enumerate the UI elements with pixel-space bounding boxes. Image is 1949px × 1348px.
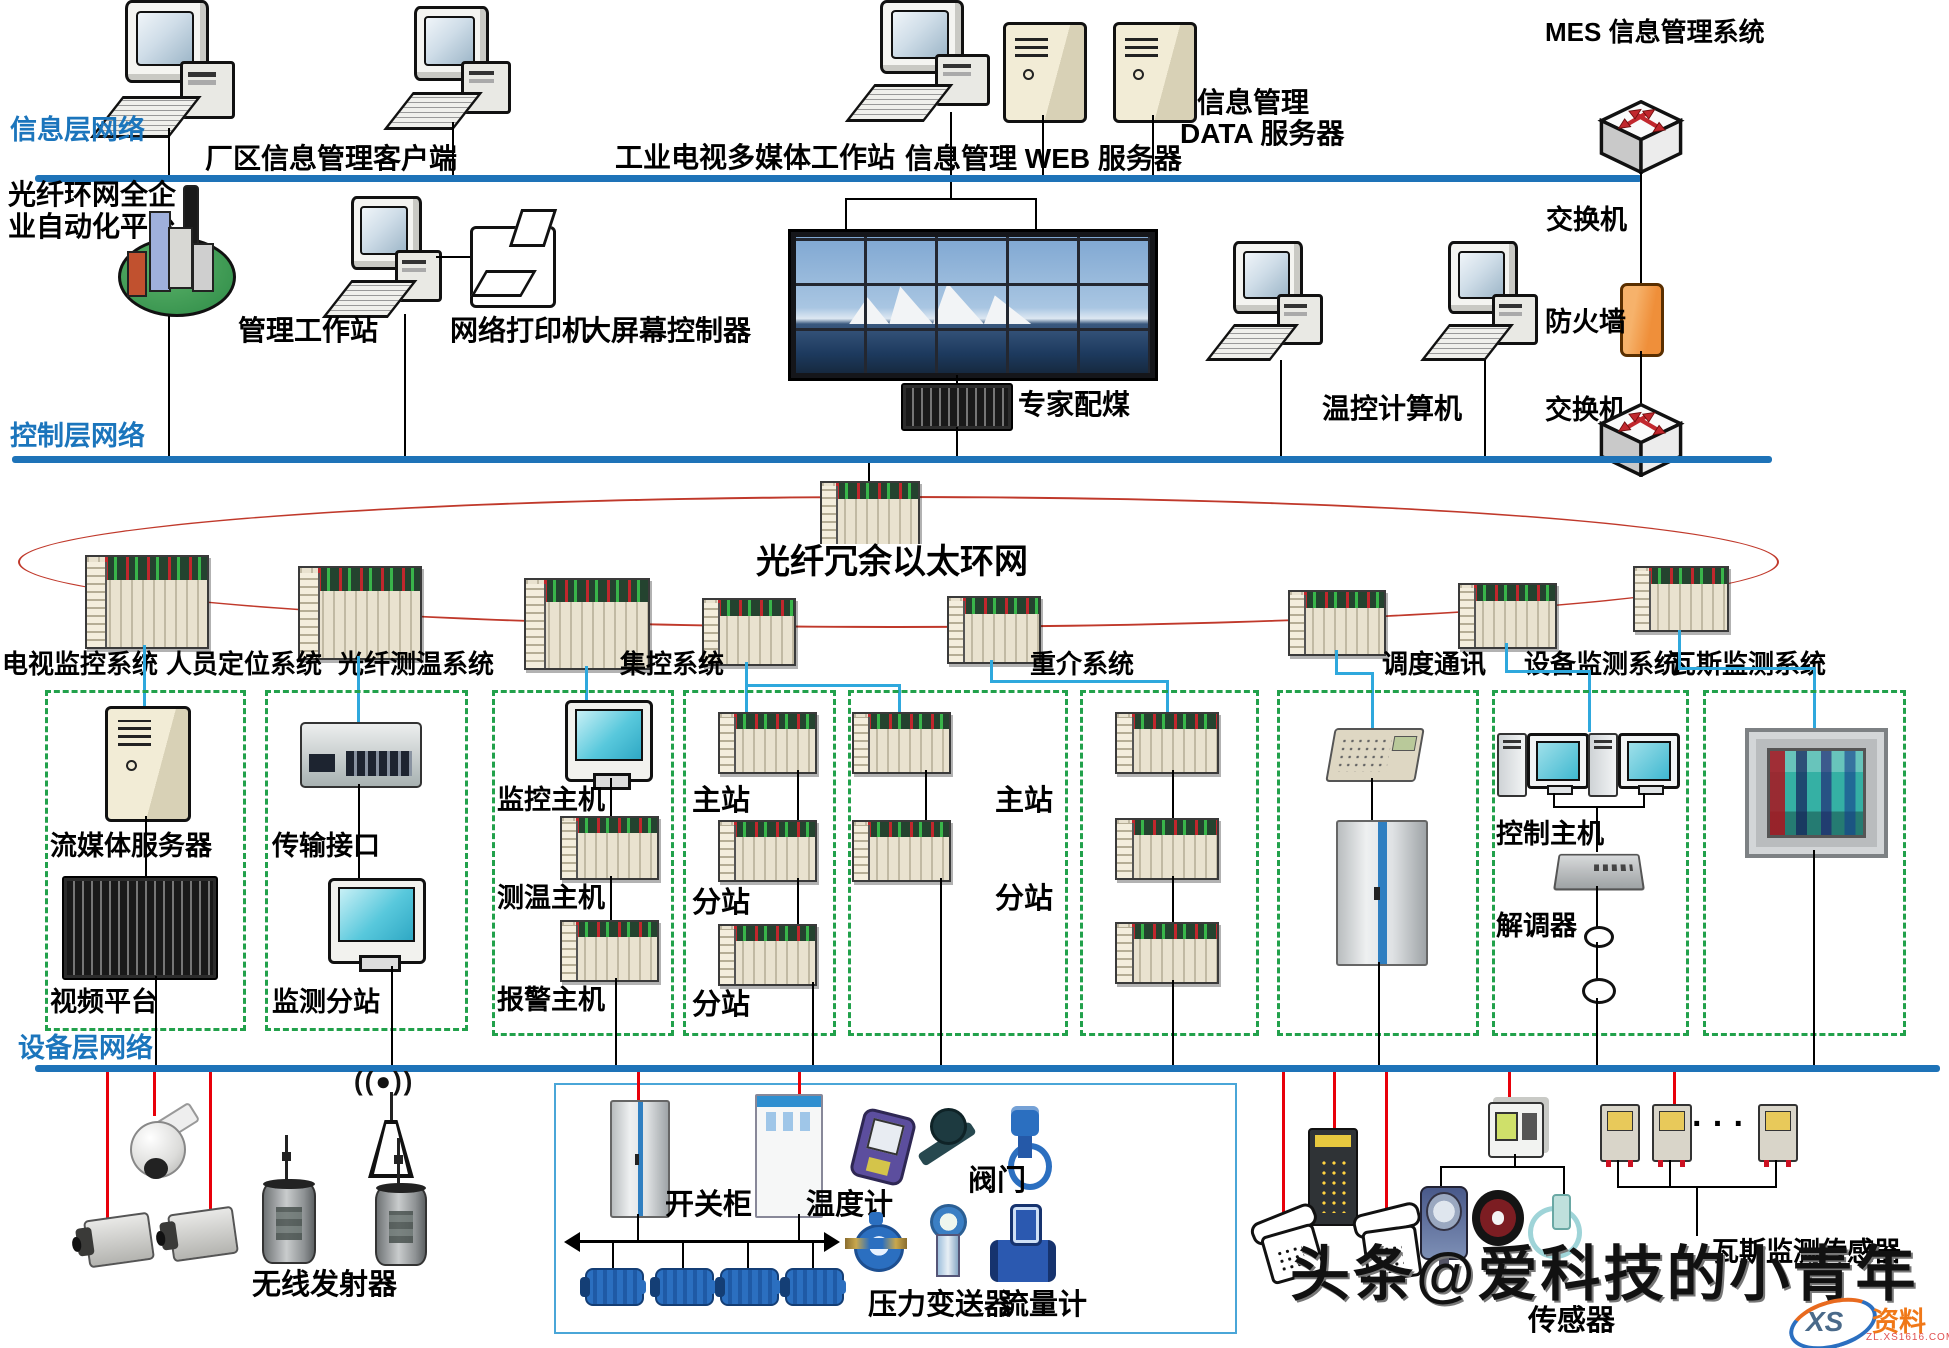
box-camera-icon (83, 1212, 155, 1269)
connector-line (1775, 1160, 1777, 1188)
firewall-label: 防火墙 (1545, 308, 1626, 338)
connector-line (1596, 886, 1598, 928)
tv-workstation-label: 工业电视多媒体工作站 (615, 143, 895, 174)
ring-system-label: 光纤测温系统 (338, 650, 494, 679)
connector-line (1280, 360, 1282, 457)
link-line (1335, 650, 1338, 674)
connector-line (682, 1242, 684, 1268)
firewall-icon (1620, 283, 1664, 357)
connector-line (940, 878, 942, 1066)
connector-line (436, 256, 472, 258)
connector-line (845, 198, 847, 233)
connector-line (797, 878, 799, 924)
connector-line (868, 463, 870, 481)
dispatch-console-icon (1325, 728, 1425, 782)
plc-icon (1115, 712, 1219, 774)
watermark-text: 头条@爱科技的小青年 (1290, 1226, 1919, 1313)
slave-station-label: 分站 (692, 888, 750, 920)
pressure-transmitter-label: 压力变送器 (868, 1290, 1013, 1322)
temp-computer-icon (1420, 241, 1538, 361)
video-platform-label: 视频平台 (50, 988, 158, 1018)
plc-icon (1115, 818, 1219, 880)
control-host-tower-icon (1497, 733, 1527, 797)
link-line (1673, 1072, 1676, 1106)
motor-icon (655, 1268, 714, 1306)
connector-line (812, 982, 814, 1066)
transmission-interface-label: 传输接口 (272, 832, 380, 862)
connector-line (1172, 876, 1174, 922)
video-wall-icon (788, 229, 1158, 381)
switch-cabinet-label: 开关柜 (665, 1190, 752, 1222)
connector-line (404, 314, 406, 457)
control-host-monitor-icon (1527, 733, 1589, 789)
connector-line (1596, 998, 1598, 1066)
plc-icon (852, 712, 951, 774)
connector-line (1553, 806, 1645, 808)
mgmt-workstation-icon (322, 196, 442, 318)
connector-line (1172, 770, 1174, 818)
connector-line (1378, 962, 1380, 1066)
water-meter-icon (845, 1208, 907, 1274)
box-camera-icon (167, 1206, 239, 1263)
screen-controller-label: 大屏幕控制器 (583, 316, 751, 347)
connector-line (798, 1214, 800, 1242)
expert-coal-label: 专家配煤 (1018, 390, 1130, 421)
temp-computer-label: 温控计算机 (1322, 394, 1462, 425)
master-station-label: 主站 (995, 786, 1053, 818)
ring-system-label: 重介系统 (1030, 650, 1134, 679)
mgmt-workstation-label: 管理工作站 (238, 316, 378, 347)
control-layer-bus (12, 456, 1772, 463)
master-station-label: 主站 (692, 786, 750, 818)
motor-icon (585, 1268, 644, 1306)
dispatch-cabinet-icon (1336, 820, 1428, 966)
logo-xs-text: XS (1806, 1306, 1843, 1337)
wireless-transmitter-icon (375, 1186, 427, 1266)
antenna-rod-node (394, 1155, 403, 1164)
network-diagram: 信息层网络 厂区信息管理客户端 工业电视多媒体工作站 信息管理 WEB 服务器 … (0, 0, 1949, 1348)
control-host-label: 控制主机 (1496, 820, 1604, 850)
screen-controller-rack-icon (901, 383, 1013, 431)
ring-system-label: 电视监控系统 (2, 650, 158, 679)
monitor-host-label: 监控主机 (497, 786, 605, 816)
switch-icon (1597, 100, 1685, 174)
plc-icon (718, 712, 817, 774)
plc-icon (852, 820, 951, 882)
flow-meter-label: 流量计 (1000, 1290, 1087, 1322)
junction-box-icon (1488, 1102, 1544, 1158)
motor-bus-line (578, 1240, 826, 1243)
gas-monitor-screen-icon (1745, 728, 1888, 858)
info-layer-label: 信息层网络 (10, 116, 145, 146)
connector-line (1172, 980, 1174, 1066)
alarm-host-label: 报警主机 (497, 986, 605, 1016)
connector-line (1035, 198, 1037, 233)
wireless-transmitter-label: 无线发射器 (252, 1270, 397, 1302)
link-line (1385, 1072, 1388, 1208)
connector-line (1440, 1166, 1565, 1168)
connector-line (956, 375, 958, 383)
connector-line (145, 816, 147, 876)
connector-line (747, 1242, 749, 1268)
connector-line (956, 427, 958, 457)
connector-line (155, 976, 157, 1066)
ring-title: 光纤冗余以太环网 (748, 544, 1036, 581)
monitor-substation-icon (328, 878, 426, 964)
switch-cabinet-icon (610, 1100, 670, 1218)
link-line (1282, 1072, 1285, 1212)
link-line (798, 1072, 801, 1094)
switch1-label: 交换机 (1546, 206, 1627, 236)
motor-icon (720, 1268, 779, 1306)
ring-system-label: 调度通讯 (1382, 650, 1486, 679)
arrow-left-icon (564, 1232, 580, 1252)
ring-system-label: 设备监测系统 (1524, 650, 1680, 679)
plc-icon (85, 555, 209, 649)
client-label: 厂区信息管理客户端 (205, 144, 457, 175)
connector-line (1669, 1160, 1671, 1188)
motor-icon (785, 1268, 844, 1306)
tv-workstation-icon (383, 6, 511, 130)
device-layer-label: 设备层网络 (18, 1034, 153, 1064)
web-server-label: 信息管理 WEB 服务器 (905, 144, 1182, 175)
plc-icon (947, 596, 1041, 664)
connector-line (1371, 778, 1373, 820)
transmission-interface-icon (300, 722, 422, 788)
ring-system-label: 人员定位系统 (166, 650, 322, 679)
gas-sensor-icon (1652, 1104, 1692, 1162)
connector-line (845, 198, 1037, 200)
antenna-cone-icon (368, 1120, 414, 1178)
web-server-computer-icon (845, 0, 990, 122)
antenna-rod (390, 1092, 393, 1120)
info-layer-bus (35, 175, 1642, 182)
ellipsis-dots: · · · (1692, 1106, 1745, 1143)
logo-domain: ZL.XS1616.COM (1866, 1332, 1949, 1343)
insulator-icon (1582, 978, 1616, 1004)
pressure-transmitter-icon (923, 1204, 969, 1276)
switch-icon (1597, 403, 1685, 477)
data-server-label-line2: DATA 服务器 (1180, 119, 1344, 150)
ring-system-label: 集控系统 (620, 650, 724, 679)
plc-icon (560, 920, 659, 982)
gas-sensor-icon (1758, 1104, 1798, 1162)
plc-icon (1115, 922, 1219, 984)
data-server-icon (1113, 22, 1197, 123)
connector-line (615, 978, 617, 1066)
arrow-right-icon (824, 1232, 840, 1252)
slave-station-label: 分站 (692, 990, 750, 1022)
plc-icon (560, 816, 659, 880)
link-line (1678, 630, 1681, 670)
connector-line (1484, 360, 1486, 457)
wireless-transmitter-icon (262, 1182, 316, 1264)
connector-line (610, 876, 612, 920)
demodulator-icon (1553, 854, 1645, 891)
link-line (990, 680, 1168, 683)
streaming-server-label: 流媒体服务器 (50, 832, 212, 862)
connector-line (1563, 1166, 1565, 1194)
link-line (1335, 672, 1373, 675)
connector-line (925, 770, 927, 820)
device-layer-bus (35, 1065, 1940, 1072)
printer-icon (470, 226, 556, 308)
plc-icon (1288, 590, 1386, 656)
antenna-waves-icon: ((●)) (354, 1066, 414, 1097)
data-server-label-line1: 信息管理 (1197, 88, 1309, 119)
plc-icon (820, 481, 920, 547)
control-layer-label: 控制层网络 (10, 422, 145, 452)
temp-computer-icon (1205, 241, 1323, 361)
demodulator-label: 解调器 (1496, 912, 1577, 942)
link-line (1508, 1072, 1511, 1102)
logo-xs: XS (1806, 1306, 1843, 1338)
link-line (1505, 670, 1591, 673)
plc-icon (1458, 583, 1557, 649)
flow-meter-icon (990, 1204, 1056, 1282)
antenna-rod-node (282, 1152, 291, 1161)
enterprise-platform-icon (118, 185, 230, 317)
temp-host-label: 测温主机 (497, 884, 605, 914)
insulator-icon (1584, 926, 1614, 948)
mes-title: MES 信息管理系统 (1545, 18, 1765, 47)
valve-label: 阀门 (968, 1166, 1026, 1198)
connector-line (1813, 850, 1815, 1066)
connector-line (1596, 942, 1598, 980)
plc-icon (718, 820, 817, 882)
data-server-icon (1003, 22, 1087, 123)
monitor-substation-label: 监测分站 (272, 988, 380, 1018)
connector-line (168, 128, 170, 176)
link-line (990, 660, 993, 682)
plc-icon (1633, 566, 1729, 632)
link-line (1333, 1072, 1336, 1128)
link-line (106, 1072, 109, 1218)
plc-icon (718, 924, 817, 986)
dome-camera-icon (130, 1112, 200, 1182)
printer-label: 网络打印机 (450, 316, 590, 347)
connector-line (168, 316, 170, 457)
connector-line (812, 1242, 814, 1268)
monitor-host-icon (565, 700, 653, 782)
connector-line (637, 1214, 639, 1242)
gas-sensor-icon (1600, 1104, 1640, 1162)
link-line (745, 684, 901, 687)
link-line (1678, 667, 1816, 670)
connector-line (1440, 1166, 1442, 1186)
link-line (153, 1072, 156, 1116)
connector-line (391, 966, 393, 1066)
connector-line (1640, 351, 1642, 407)
control-host-monitor-icon (1618, 733, 1680, 789)
connector-line (612, 1242, 614, 1268)
connector-line (1617, 1160, 1619, 1188)
link-line (1505, 643, 1508, 673)
video-platform-icon (62, 876, 218, 980)
plc-icon (298, 566, 422, 660)
connector-line (1640, 172, 1642, 283)
slave-station-label: 分站 (995, 884, 1053, 916)
connector-line (358, 784, 360, 878)
link-line (637, 1072, 640, 1100)
streaming-server-icon (105, 706, 191, 822)
connector-line (610, 778, 612, 818)
control-host-tower-icon (1588, 733, 1618, 797)
connector-line (797, 770, 799, 820)
link-line (209, 1072, 212, 1210)
ring-system-label: 瓦斯监测系统 (1670, 650, 1826, 679)
